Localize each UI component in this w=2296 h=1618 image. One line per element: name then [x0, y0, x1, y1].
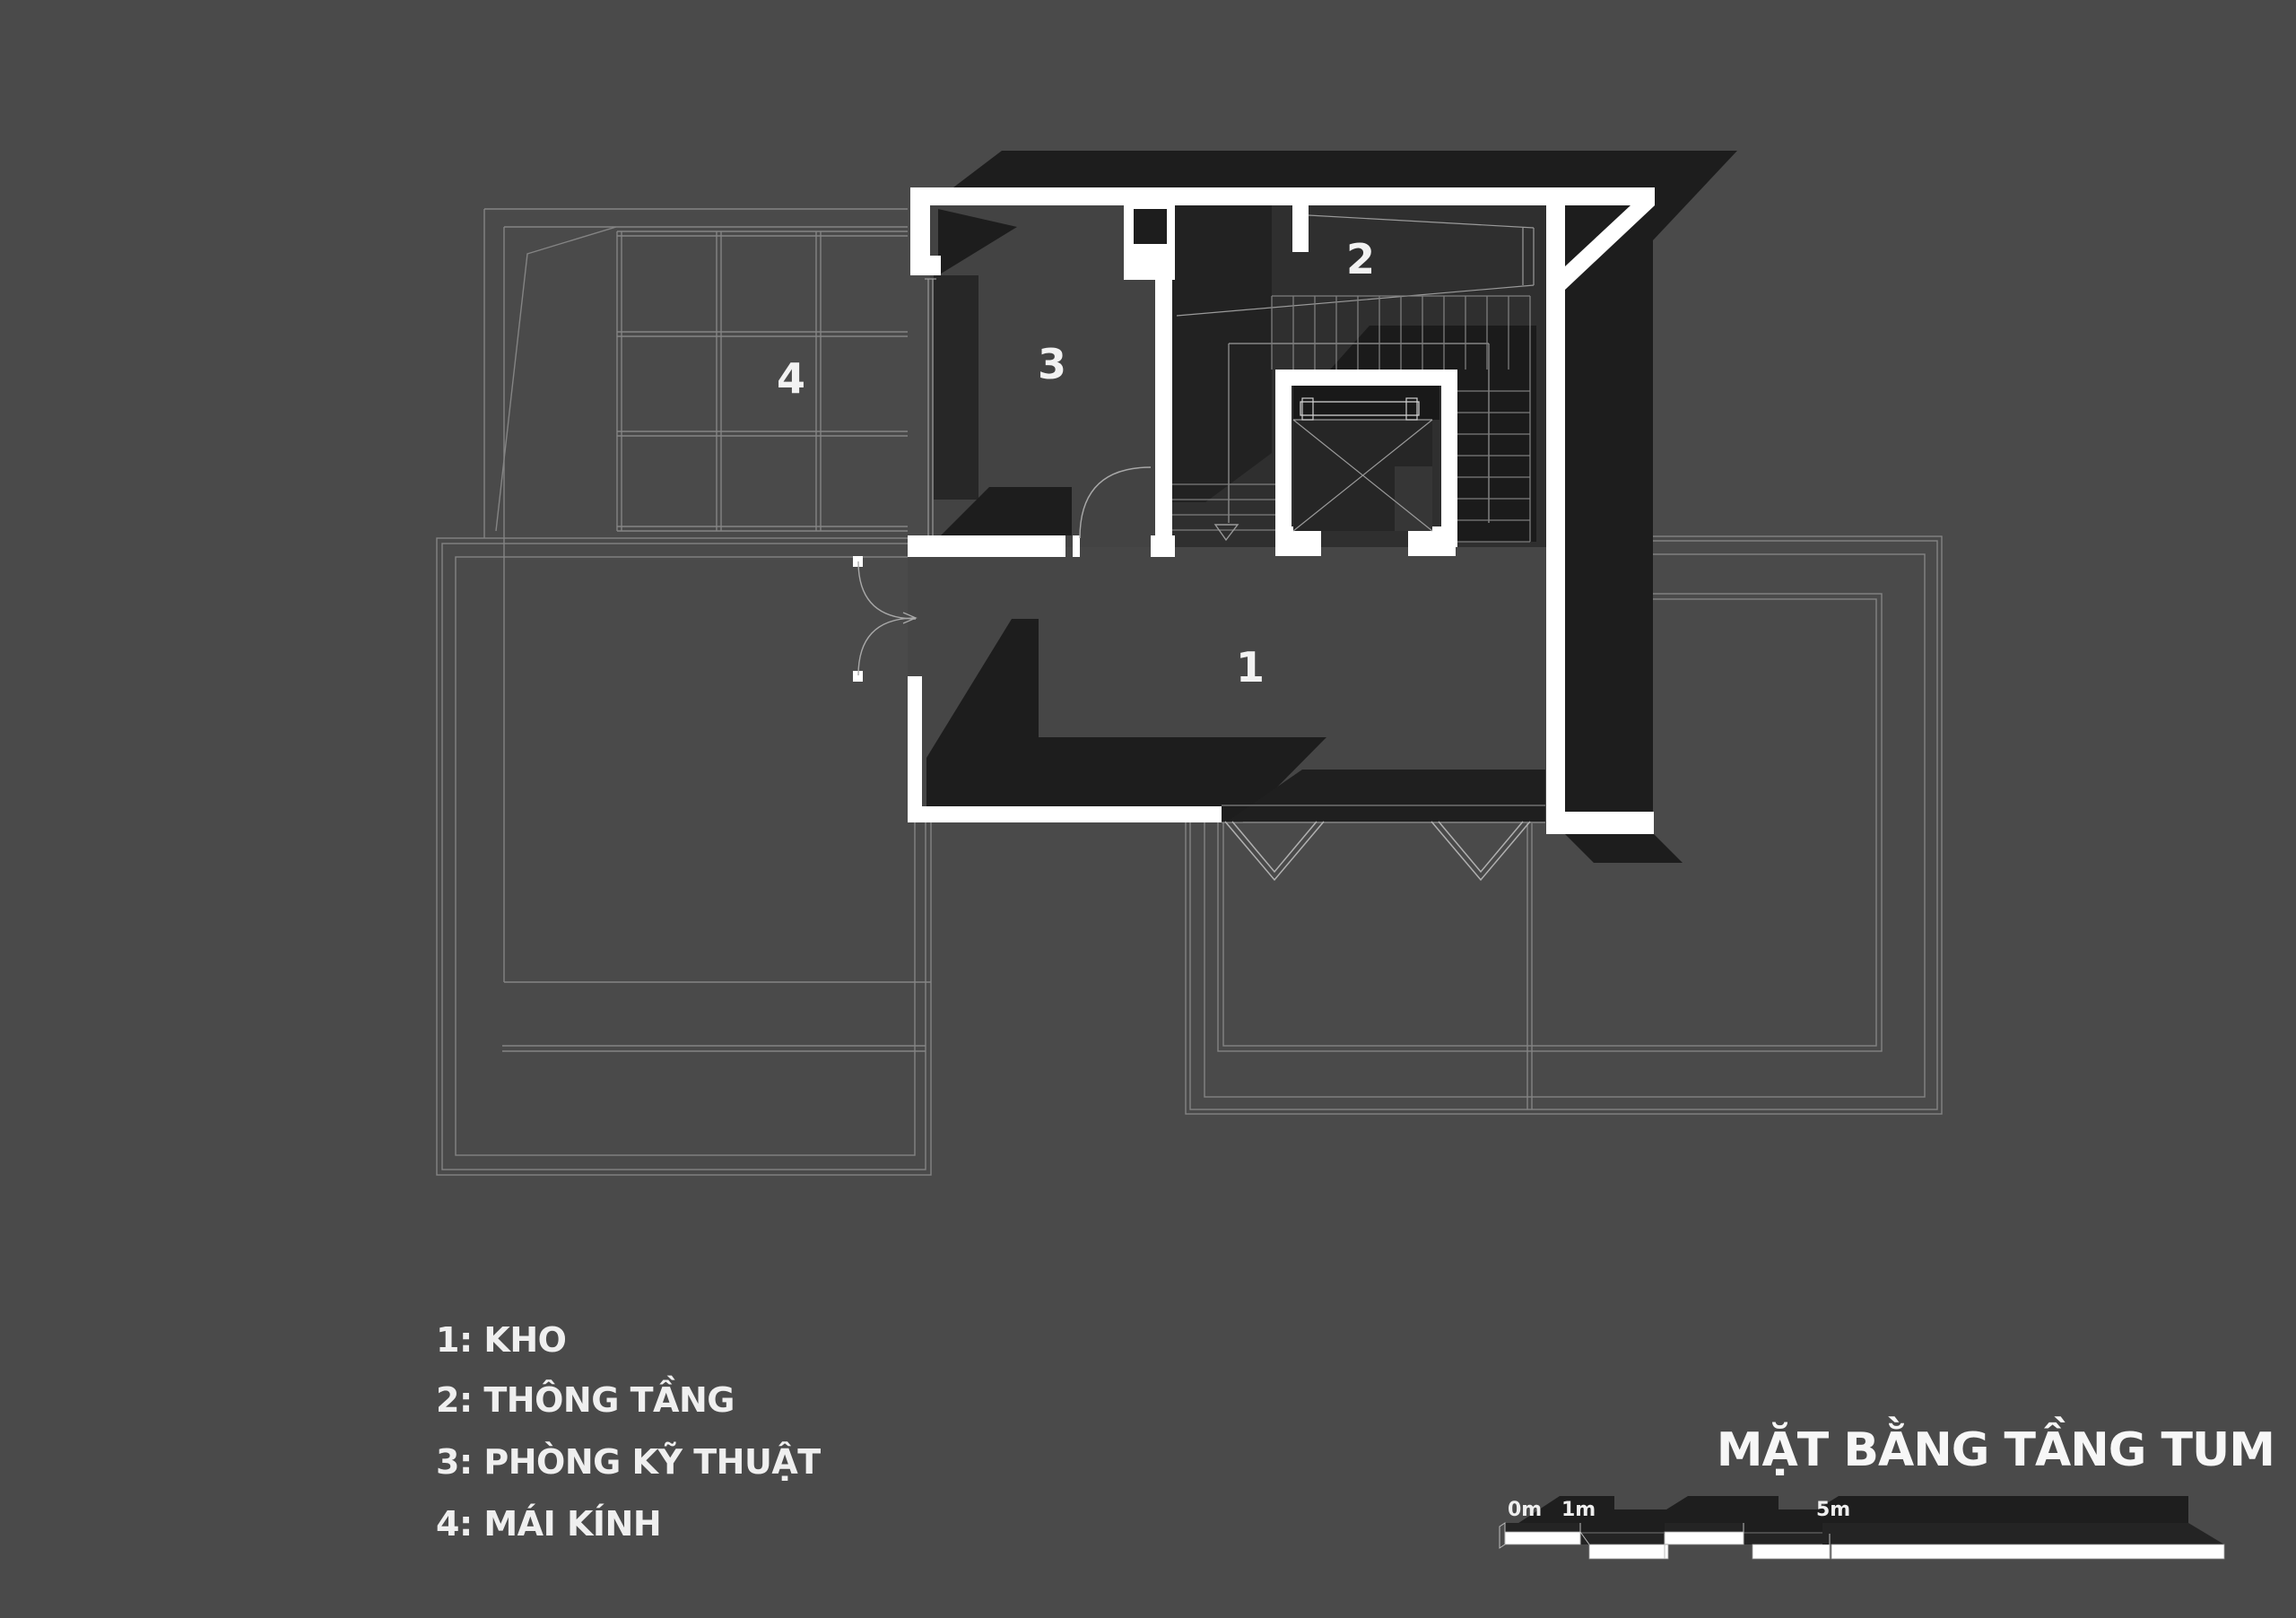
scale-segment — [1665, 1532, 1744, 1544]
scale-segment — [1589, 1544, 1668, 1559]
room-label-glass-roof: 4 — [777, 354, 805, 403]
legend-item-4: 4: MÁI KÍNH — [436, 1504, 661, 1544]
legend: 1: KHO 2: THÔNG TẦNG 3: PHÒNG KỸ THUẬT 4… — [436, 1320, 821, 1544]
double-door-swing — [858, 561, 916, 675]
top-wall — [910, 187, 1655, 205]
floor-plan-sheet: 1 2 3 4 1: KHO 2: THÔNG TẦNG 3: PHÒNG KỸ… — [0, 0, 2296, 1618]
room-label-technical: 3 — [1038, 340, 1066, 388]
technical-room-south-wall — [908, 535, 1065, 557]
scale-bar: 0m 1m 5m — [1500, 1496, 2224, 1559]
scale-segment — [1505, 1532, 1580, 1544]
door-leaf — [1073, 535, 1080, 557]
legend-item-2: 2: THÔNG TẦNG — [436, 1376, 735, 1420]
scale-segment — [1752, 1544, 1830, 1559]
right-wall-leg — [1565, 812, 1654, 834]
scale-label-0m: 0m — [1508, 1499, 1542, 1521]
room-label-void: 2 — [1346, 235, 1375, 283]
scale-label-1m: 1m — [1561, 1499, 1596, 1521]
scale-segment — [1831, 1544, 2224, 1559]
wall-stub-small — [1292, 205, 1309, 252]
right-wall — [1546, 205, 1565, 834]
legend-item-3: 3: PHÒNG KỸ THUẬT — [436, 1442, 821, 1482]
skylight-grid — [617, 231, 908, 531]
left-roof-outline — [437, 538, 931, 1175]
storage-south-wall — [908, 806, 1222, 822]
legend-item-1: 1: KHO — [436, 1320, 566, 1360]
roof-fold-line — [496, 227, 616, 531]
technical-stair-wall — [1155, 280, 1172, 535]
sheet-title: MẶT BẰNG TẦNG TUM — [1717, 1416, 2274, 1477]
wall-notch-shadow — [1134, 209, 1167, 244]
scale-label-5m: 5m — [1816, 1499, 1850, 1521]
floor-plan-drawing: 1 2 3 4 1: KHO 2: THÔNG TẦNG 3: PHÒNG KỸ… — [0, 0, 2296, 1618]
room-label-storage: 1 — [1236, 643, 1265, 692]
storage-west-wall — [908, 676, 922, 822]
